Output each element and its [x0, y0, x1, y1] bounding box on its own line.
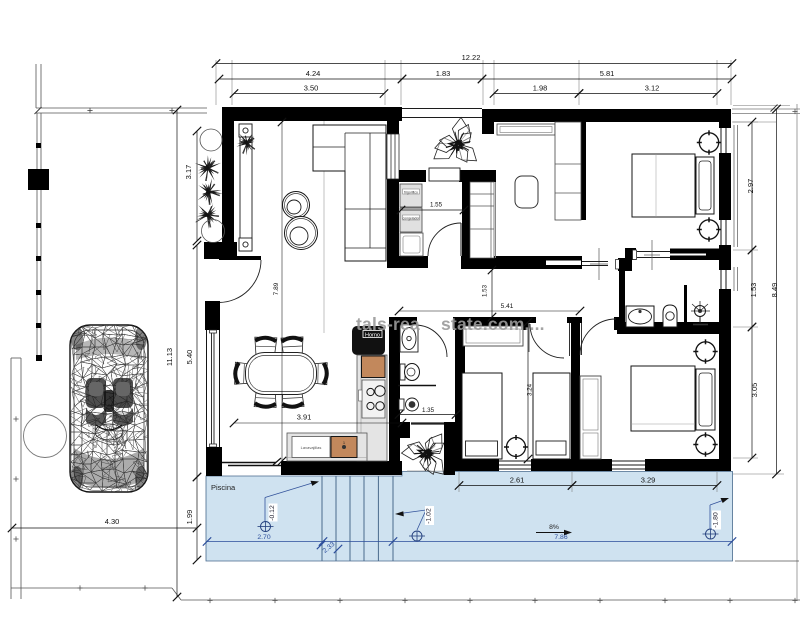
svg-text:-0.12: -0.12	[269, 505, 276, 521]
svg-text:4.24: 4.24	[306, 69, 321, 78]
svg-text:5.41: 5.41	[501, 303, 514, 310]
svg-text:3.29: 3.29	[641, 476, 656, 485]
svg-text:2.70: 2.70	[257, 534, 270, 541]
svg-text:8%: 8%	[549, 524, 559, 531]
svg-text:7.86: 7.86	[554, 534, 567, 541]
svg-text:frigorifico: frigorifico	[404, 190, 418, 194]
svg-text:11.13: 11.13	[165, 348, 174, 366]
svg-text:3.05: 3.05	[750, 383, 759, 398]
svg-text:5.40: 5.40	[185, 350, 194, 365]
svg-text:7.89: 7.89	[273, 282, 280, 295]
svg-text:3.12: 3.12	[645, 84, 660, 93]
svg-text:-1.02: -1.02	[426, 508, 433, 524]
svg-text:2.97: 2.97	[746, 179, 755, 194]
svg-text:Piscina: Piscina	[211, 483, 236, 492]
svg-text:state.com....: state.com....	[441, 314, 545, 334]
svg-text:1.99: 1.99	[185, 510, 194, 525]
svg-text:3.24: 3.24	[527, 383, 534, 396]
svg-text:1.35: 1.35	[422, 407, 435, 414]
svg-text:1.53: 1.53	[749, 283, 758, 298]
svg-text:3.17: 3.17	[184, 165, 193, 180]
svg-text:8.49: 8.49	[770, 283, 779, 298]
svg-text:1.98: 1.98	[533, 84, 548, 93]
svg-text:2.61: 2.61	[510, 476, 525, 485]
svg-text:congelador: congelador	[403, 216, 421, 220]
svg-text:12.22: 12.22	[462, 53, 481, 62]
svg-text:tals-rea: tals-rea	[356, 314, 420, 334]
svg-text:-1.80: -1.80	[713, 512, 720, 528]
svg-text:3.91: 3.91	[297, 413, 312, 422]
svg-text:1.55: 1.55	[430, 202, 443, 209]
svg-text:Lavavajillas: Lavavajillas	[301, 445, 322, 450]
svg-text:4.30: 4.30	[105, 517, 120, 526]
svg-text:1.83: 1.83	[436, 69, 451, 78]
svg-text:5.81: 5.81	[600, 69, 615, 78]
svg-text:3.50: 3.50	[304, 84, 319, 93]
svg-text:1.53: 1.53	[482, 284, 489, 297]
